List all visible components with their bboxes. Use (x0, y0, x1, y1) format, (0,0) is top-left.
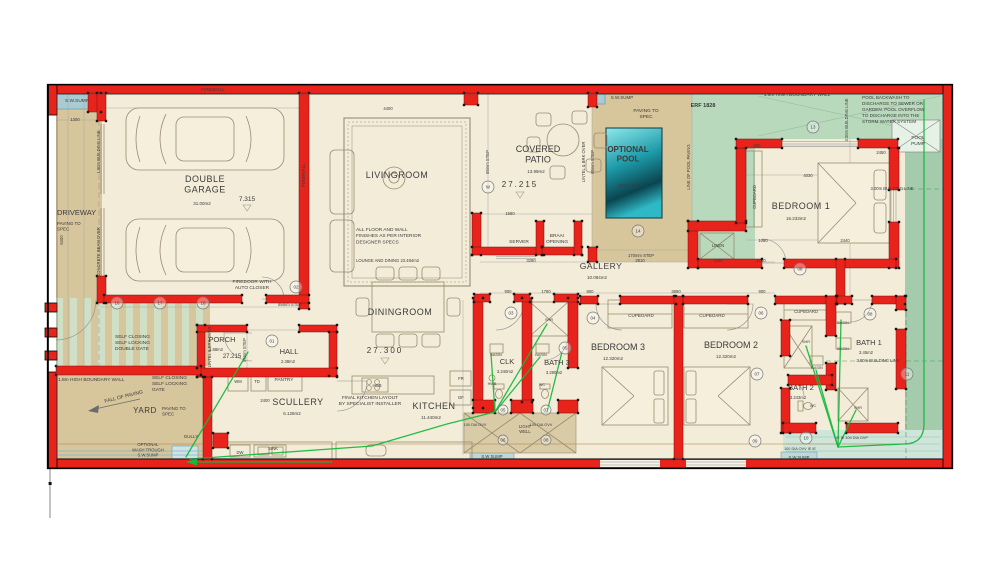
svg-text:03: 03 (509, 311, 514, 316)
label-clk: CLK (500, 357, 515, 366)
tag-06: 06 (498, 435, 508, 445)
label-bath-2: BATH 2 (788, 383, 814, 392)
label-line-pool-paving: LINE OF POOL PAVING (686, 144, 691, 189)
tag-08: 08 (541, 435, 551, 445)
label-cupboard-right: CUPBOARD (794, 309, 818, 314)
label-bedroom-1-area: 16.233m2 (786, 216, 807, 221)
svg-text:05: 05 (563, 346, 568, 351)
tag-04: 04 (587, 312, 599, 324)
dim-1580: 1580 (505, 211, 515, 216)
dim-800: 800 (754, 143, 762, 148)
dim-1300: 1300 (70, 117, 80, 122)
svg-text:09: 09 (753, 439, 758, 444)
tag-07: 07 (541, 405, 551, 415)
label-livingroom: LIVINGROOM (366, 170, 429, 180)
label-scullery-area: 6.128m2 (283, 411, 301, 416)
car-top (126, 108, 284, 170)
tag-14: 14 (632, 225, 644, 237)
svg-text:10: 10 (804, 436, 809, 441)
svg-text:06: 06 (759, 311, 764, 316)
tag-02: 02 (290, 281, 302, 293)
label-bath-3: BATH 3 (544, 358, 570, 367)
label-gallery: GALLERY (580, 261, 623, 271)
label-wc-b3: WC (539, 383, 546, 387)
label-step-patio-right: 85mm STEP (590, 150, 595, 174)
label-shr-b3: SHR (545, 318, 553, 322)
svg-text:07: 07 (755, 372, 760, 377)
label-bath-1: BATH 1 (856, 338, 882, 347)
tag-06: 06 (755, 307, 767, 319)
label-bedroom-3: BEDROOM 3 (591, 342, 645, 352)
label-concrete-beam: CONCRETE BEAM OVER (96, 227, 101, 277)
label-gully: GULLY (184, 434, 198, 439)
label-patio-area: 13.99m2 (527, 169, 545, 174)
svg-text:08: 08 (798, 267, 803, 272)
dim-1040: 1040 (756, 258, 766, 263)
tag-03: 03 (505, 307, 517, 319)
label-sw-sump-pool: S.W.SUMP (611, 95, 634, 100)
label-building-line-left: 1.50m BUILDING LINE (96, 130, 101, 173)
label-bldg-line-v1: 3.00m BUILDING LINE (844, 98, 849, 141)
tag-07: 07 (751, 368, 763, 380)
label-lintel-patio: LINTEL & BRK OVER (581, 142, 586, 183)
dim-2400: 2400 (260, 398, 270, 403)
svg-text:07: 07 (544, 408, 549, 413)
label-bldg-line-h2: 3.00m BUILDING LINE (856, 358, 899, 363)
bed-bedroom2 (684, 367, 750, 425)
label-shr-b1: SHR (854, 406, 862, 410)
label-bldg-line-h1: 3.00m BUILDING LINE (870, 186, 913, 191)
label-bedroom-2: BEDROOM 2 (704, 340, 758, 350)
label-hall-area: 2.38m2 (281, 359, 296, 364)
label-bath-2-area: 3.243m2 (790, 395, 807, 400)
label-boundary-yard: 1.8m HIGH BOUNDARY WALL (58, 377, 125, 383)
dim-2810: 2810 (635, 258, 645, 263)
tag-01: 01 (266, 335, 278, 347)
svg-text:04: 04 (591, 316, 596, 321)
dim-4030: 4030 (803, 173, 813, 178)
dim-1780: 1780 (541, 289, 551, 294)
label-fr: FR (458, 376, 464, 381)
label-basin-b2: BASIN (811, 366, 823, 370)
tag-17: 17 (154, 297, 166, 309)
svg-text:18: 18 (201, 301, 206, 306)
label-bath-1-area: 3.45m2 (859, 350, 874, 355)
label-ovv-right: 100 DIA OVV IE IE (784, 447, 816, 451)
label-wc-b2: WC (810, 404, 817, 408)
label-server: SERVER (509, 239, 529, 245)
label-step-garage: 85mm STEP (278, 302, 302, 307)
label-firewall-right: FIREWALL (301, 163, 307, 187)
tag-08: 08 (794, 263, 806, 275)
label-df: DF (458, 395, 464, 400)
dim-3280: 3280 (526, 258, 536, 263)
svg-text:05: 05 (501, 408, 506, 413)
svg-text:02: 02 (294, 285, 299, 290)
label-kitchen-area: 11.440m2 (421, 415, 441, 420)
svg-text:17: 17 (158, 301, 163, 306)
label-diningroom: DININGROOM (368, 307, 433, 317)
label-driveway: DRIVEWAY (57, 208, 96, 217)
label-ovp-right: IE IE 100 DIA OVP (836, 436, 868, 440)
label-yard: YARD (133, 406, 157, 415)
svg-text:06: 06 (501, 438, 506, 443)
svg-text:01: 01 (270, 339, 275, 344)
label-ovv-2: 100 DIA OVV (530, 423, 553, 427)
dim-6400: 6400 (59, 235, 64, 245)
label-scullery: SCULLERY (272, 397, 323, 407)
label-sw-sump-tl: S.W.SUMP (65, 98, 89, 104)
dim-900b: 900 (587, 289, 595, 294)
label-garage-area: 31.00m2 (193, 201, 211, 206)
label-hob: HOB (372, 383, 381, 388)
label-ovv-1: 100 DIA OVV (464, 423, 487, 427)
wash-trough-box (172, 446, 198, 459)
label-kitchen-level: 27.300 (367, 346, 403, 355)
tag-18: 18 (197, 297, 209, 309)
tag-10: 10 (800, 432, 812, 444)
floor-plan-page: 0102030405060708080910111314W16171805070… (0, 0, 1000, 563)
label-pool-size: 1200 x 2000 (617, 183, 641, 188)
svg-text:08: 08 (544, 438, 549, 443)
label-double-gate: SELF CLOSINGSELF LOCKINGDOUBLE GATE (115, 334, 150, 352)
label-light-well: LIGHTWELL (519, 424, 532, 434)
label-step-hall: 85mm STEP (242, 338, 247, 362)
label-garage-level: 7.315 (239, 196, 256, 203)
bed-bedroom3 (602, 367, 668, 425)
label-cupboard-b1: CUPBOARD (752, 185, 757, 209)
tag-08: 08 (864, 308, 876, 320)
label-basin-b3: BASIN (535, 353, 547, 357)
label-firewall-top: FIREWALL (201, 87, 225, 93)
dim-2440: 2440 (840, 238, 850, 243)
gate-paving-stripes (56, 298, 210, 366)
tag-13: 13 (807, 121, 819, 133)
label-basin-clk: BASIN (490, 353, 502, 357)
svg-text:13: 13 (811, 125, 816, 130)
label-porch-level: 27.215 (223, 354, 242, 360)
label-bath-3-area: 3.280m2 (546, 370, 563, 375)
tag-16: 16 (111, 297, 123, 309)
label-kitchen: KITCHEN (412, 401, 455, 411)
label-gallery-area: 10.084m2 (587, 275, 608, 280)
label-wm: WM (234, 379, 242, 384)
label-cupboard-bed3: CUPBOARD (628, 313, 654, 318)
svg-text:14: 14 (636, 229, 641, 234)
label-double-garage: DOUBLEGARAGE (184, 174, 226, 194)
tag-05: 05 (498, 405, 508, 415)
label-patio-level: 27.215 (502, 180, 538, 189)
optional-pool (606, 128, 662, 218)
svg-text:16: 16 (115, 301, 120, 306)
floor-plan-drawing: 0102030405060708080910111314W16171805070… (0, 0, 1000, 563)
dim-3890: 3890 (671, 289, 681, 294)
label-sink: SINK (268, 446, 278, 451)
label-linen: LINEN (712, 243, 724, 248)
label-boundary-tr: 1.8m HIGH BOUNDARY WALL (764, 92, 831, 98)
label-pantry: PANTRY (274, 377, 294, 383)
label-bedroom-2-area: 12.320m2 (716, 354, 737, 359)
tag-09: 09 (749, 435, 761, 447)
label-lintel-porch: LINTEL & BRK OVER (207, 327, 212, 368)
label-cupboard-bed2: CUPBOARD (699, 313, 725, 318)
dim-900a: 900 (505, 289, 513, 294)
label-step-patio-left: 85mm STEP (485, 150, 490, 174)
label-erf: ERF 1828 (691, 103, 716, 109)
dim-900c: 900 (759, 289, 767, 294)
tag-05: 05 (559, 342, 571, 354)
label-hall: HALL (280, 347, 299, 356)
label-shr-b2: SHR (802, 340, 810, 344)
label-td: TD (254, 379, 260, 384)
dim-4400: 4400 (383, 106, 393, 111)
tag-11: 11 (901, 368, 913, 380)
label-bedroom-1: BEDROOM 1 (772, 201, 831, 211)
dim-1080: 1080 (758, 238, 768, 243)
dim-1200: 1200 (713, 258, 723, 263)
dim-2450: 2450 (876, 150, 886, 155)
svg-text:08: 08 (868, 312, 873, 317)
label-sump-center: S.W SUMP (481, 454, 502, 459)
label-clk-area: 3.240m2 (497, 369, 514, 374)
tag-W: W (482, 181, 494, 193)
label-basin-r2: BASIN (837, 347, 849, 351)
label-bedroom-3-area: 12.320m2 (603, 356, 624, 361)
label-pool-pump: POOLPUMP (911, 135, 925, 147)
svg-text:11: 11 (905, 372, 910, 377)
label-hwb: HWB (488, 382, 497, 386)
label-dw: DW (237, 450, 244, 455)
car-bottom (126, 219, 284, 281)
label-porch: PORCH (208, 335, 235, 344)
label-lounge-dining: LOUNGE AND DINING 23.484m2 (356, 258, 420, 263)
label-basin-r1: BASIN (837, 321, 849, 325)
label-sump-right: S.W.SUMP (789, 455, 810, 460)
